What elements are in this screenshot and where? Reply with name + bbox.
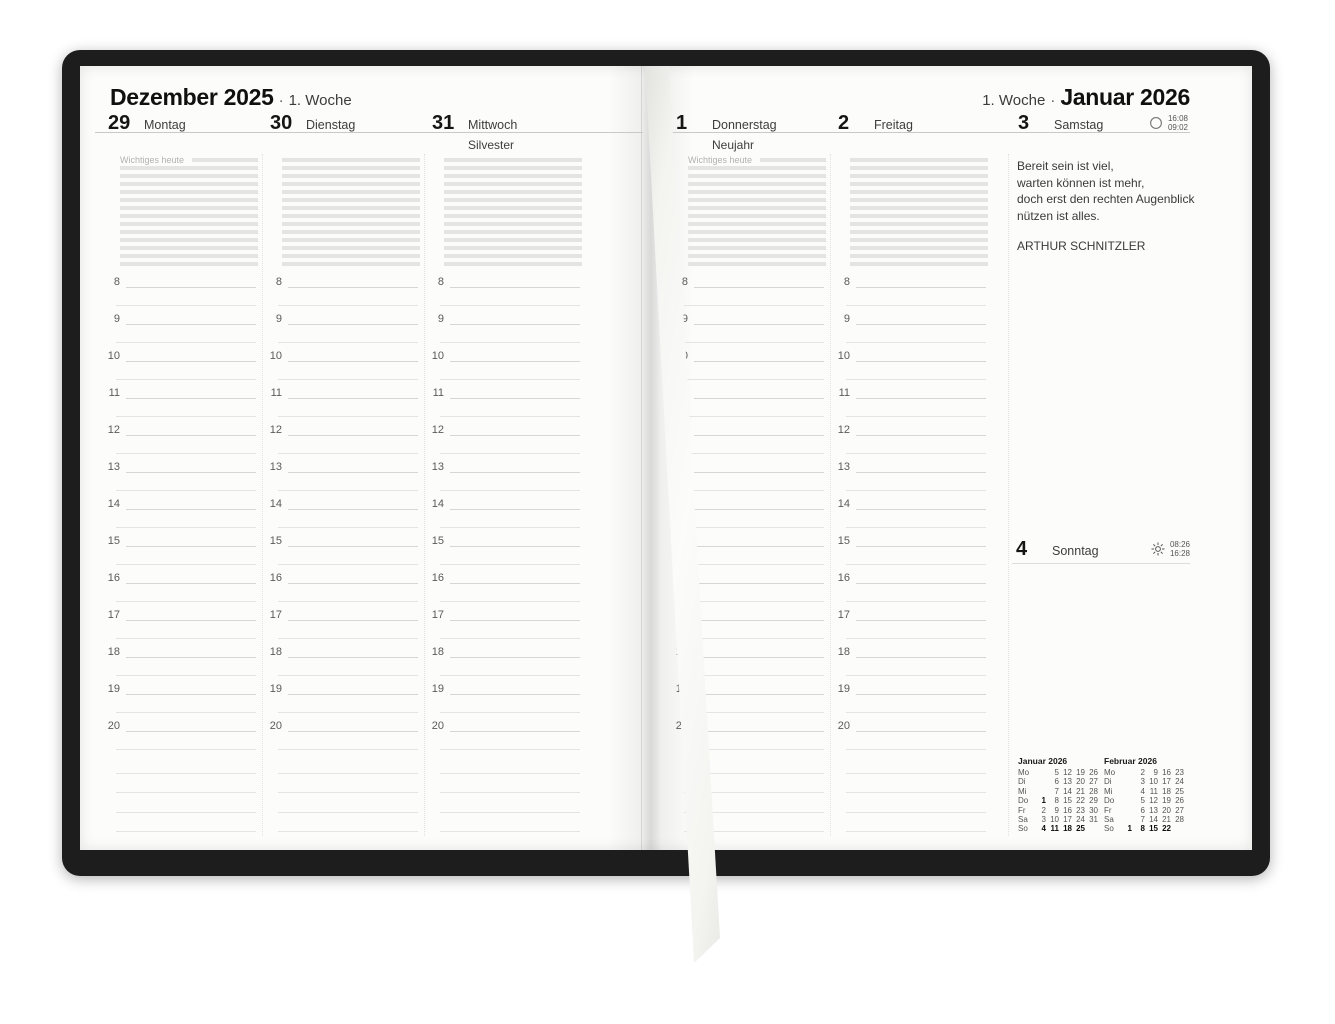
right-page-title: 1. Woche·Januar 2026 <box>982 84 1190 111</box>
hour-line <box>126 435 256 436</box>
hour-row: 18 <box>424 643 586 680</box>
half-hour-line <box>684 416 824 417</box>
hour-label: 15 <box>102 535 120 547</box>
hour-row: 13 <box>830 458 992 495</box>
sun-times: 08:26 16:28 <box>1170 540 1190 558</box>
hour-row: 14 <box>424 495 586 532</box>
mini-calendar-row: Mi7142128 <box>1018 787 1102 796</box>
mini-calendar-date: 14 <box>1145 815 1158 824</box>
moonset-time: 09:02 <box>1168 123 1188 132</box>
hour-label: 14 <box>832 498 850 510</box>
mini-calendar-date: 25 <box>1072 824 1085 833</box>
extra-line <box>846 774 986 794</box>
mini-calendar-date: 9 <box>1145 768 1158 777</box>
day-name: Donnerstag <box>712 118 777 132</box>
hour-row: 18 <box>262 643 424 680</box>
hour-label: 20 <box>426 720 444 732</box>
mini-calendar-date: 18 <box>1059 824 1072 833</box>
hour-row: 19 <box>262 680 424 717</box>
hour-row: 9 <box>830 310 992 347</box>
half-hour-line <box>278 305 418 306</box>
hour-row: 10 <box>424 347 586 384</box>
day-name: Montag <box>144 118 186 132</box>
hour-label: 18 <box>426 646 444 658</box>
hour-line <box>694 509 824 510</box>
half-hour-line <box>278 564 418 565</box>
hour-row: 14 <box>262 495 424 532</box>
mini-calendar-date: 15 <box>1059 796 1072 805</box>
left-week-label: 1. Woche <box>289 92 352 109</box>
hour-label: 12 <box>832 424 850 436</box>
hour-row: 18 <box>100 643 262 680</box>
day-name: Samstag <box>1054 118 1103 132</box>
mini-calendar-date: 15 <box>1145 824 1158 833</box>
half-hour-line <box>278 712 418 713</box>
hour-label: 14 <box>264 498 282 510</box>
hour-line <box>288 287 418 288</box>
mini-calendar-date: 19 <box>1072 768 1085 777</box>
mini-calendar-date: 12 <box>1145 796 1158 805</box>
half-hour-line <box>440 416 580 417</box>
mini-calendar-row: So181522 <box>1104 824 1188 833</box>
hour-label: 9 <box>426 313 444 325</box>
half-hour-line <box>440 527 580 528</box>
hour-grid: 891011121314151617181920 <box>100 273 262 832</box>
hour-row: 17 <box>830 606 992 643</box>
mini-calendar-row: Do18152229 <box>1018 796 1102 805</box>
hour-line <box>450 694 580 695</box>
hour-label: 19 <box>102 683 120 695</box>
hour-line <box>856 287 986 288</box>
day-column-freitag: 2Freitag891011121314151617181920 <box>830 112 992 838</box>
hour-line <box>126 620 256 621</box>
hour-label: 8 <box>102 276 120 288</box>
mini-calendar-date <box>1119 777 1132 786</box>
hour-line <box>288 657 418 658</box>
hour-label: 10 <box>102 350 120 362</box>
hour-line <box>856 583 986 584</box>
half-hour-line <box>440 675 580 676</box>
hour-row: 9 <box>262 310 424 347</box>
half-hour-line <box>684 638 824 639</box>
hour-label: 17 <box>102 609 120 621</box>
mini-calendar-date <box>1033 768 1046 777</box>
hour-row: 12 <box>424 421 586 458</box>
day-name: Sonntag <box>1052 544 1099 558</box>
hour-label: 19 <box>264 683 282 695</box>
mini-calendar-date: 10 <box>1046 815 1059 824</box>
mini-calendar-row: Fr29162330 <box>1018 806 1102 815</box>
hour-line <box>450 398 580 399</box>
half-hour-line <box>440 342 580 343</box>
hour-line <box>288 620 418 621</box>
hour-row: 17 <box>424 606 586 643</box>
half-hour-line <box>684 453 824 454</box>
day-number: 2 <box>838 112 862 135</box>
hour-line <box>126 694 256 695</box>
mini-calendar-date: 4 <box>1132 787 1145 796</box>
mini-calendar-date: 4 <box>1033 824 1046 833</box>
hour-line <box>126 583 256 584</box>
hour-row: 12 <box>262 421 424 458</box>
half-hour-line <box>440 305 580 306</box>
extra-line <box>440 813 580 833</box>
mini-calendar-date: 20 <box>1158 806 1171 815</box>
hour-row: 11 <box>424 384 586 421</box>
mini-calendar-day-label: Do <box>1018 796 1033 805</box>
hour-row: 10 <box>668 347 830 384</box>
half-hour-line <box>440 601 580 602</box>
mini-calendar-row: So4111825 <box>1018 824 1102 833</box>
hour-row: 11 <box>668 384 830 421</box>
hour-row: 15 <box>100 532 262 569</box>
hour-line <box>288 509 418 510</box>
hour-line <box>856 657 986 658</box>
notes-area <box>444 158 582 269</box>
mini-calendar-day-label: Di <box>1104 777 1119 786</box>
half-hour-line <box>846 490 986 491</box>
hour-line <box>694 731 824 732</box>
mini-calendar-date: 21 <box>1158 815 1171 824</box>
mini-calendar-date: 7 <box>1132 815 1145 824</box>
hour-line <box>694 472 824 473</box>
half-hour-line <box>846 601 986 602</box>
hour-label: 11 <box>832 387 850 399</box>
half-hour-line <box>116 749 256 750</box>
hour-line <box>288 472 418 473</box>
day-number: 30 <box>270 112 294 135</box>
half-hour-line <box>440 490 580 491</box>
hour-row: 9 <box>424 310 586 347</box>
mini-calendar-date: 1 <box>1033 796 1046 805</box>
hour-label: 10 <box>832 350 850 362</box>
hour-row: 13 <box>100 458 262 495</box>
half-hour-line <box>684 601 824 602</box>
half-hour-line <box>116 305 256 306</box>
hour-line <box>694 361 824 362</box>
hour-row: 15 <box>424 532 586 569</box>
quote-line: doch erst den rechten Augenblick <box>1017 191 1217 208</box>
hour-line <box>856 361 986 362</box>
extra-line <box>440 774 580 794</box>
quote-line: nützen ist alles. <box>1017 208 1217 225</box>
hour-label: 12 <box>102 424 120 436</box>
mini-calendar-date: 26 <box>1085 768 1098 777</box>
hour-row: 10 <box>830 347 992 384</box>
notes-label: Wichtiges heute <box>688 156 760 165</box>
extra-line <box>440 793 580 813</box>
half-hour-line <box>846 379 986 380</box>
day-name: Dienstag <box>306 118 355 132</box>
mini-calendar-date: 5 <box>1132 796 1145 805</box>
half-hour-line <box>846 305 986 306</box>
hour-row: 12 <box>668 421 830 458</box>
half-hour-line <box>278 527 418 528</box>
extra-line <box>116 774 256 794</box>
hour-row: 8 <box>262 273 424 310</box>
moonrise-time: 16:08 <box>1168 114 1188 123</box>
mini-calendar-row: Di6132027 <box>1018 777 1102 786</box>
half-hour-line <box>440 638 580 639</box>
notes-area: Wichtiges heute <box>688 158 826 269</box>
sunset-time: 16:28 <box>1170 549 1190 558</box>
mini-calendar-date: 11 <box>1145 787 1158 796</box>
extra-line <box>440 754 580 774</box>
hour-line <box>288 546 418 547</box>
hour-row: 20 <box>830 717 992 754</box>
hour-row: 16 <box>100 569 262 606</box>
half-hour-line <box>116 379 256 380</box>
mini-calendar-day-label: Do <box>1104 796 1119 805</box>
extra-line <box>278 793 418 813</box>
day-header: 3Samstag16:0809:02 <box>1010 112 1190 134</box>
day-header-sonntag: 4 Sonntag 08:26 16:28 <box>1010 538 1192 560</box>
mini-calendar-date: 23 <box>1072 806 1085 815</box>
hour-row: 20 <box>100 717 262 754</box>
mini-calendar-row: Mo5121926 <box>1018 768 1102 777</box>
mini-calendar-date <box>1171 824 1184 833</box>
day-number: 29 <box>108 112 132 135</box>
mini-calendar-january: Januar 2026Mo5121926Di6132027Mi7142128Do… <box>1018 756 1102 834</box>
hour-line <box>450 324 580 325</box>
hour-label: 11 <box>426 387 444 399</box>
hour-row: 16 <box>424 569 586 606</box>
mini-calendar-day-label: Sa <box>1018 815 1033 824</box>
hour-label: 15 <box>264 535 282 547</box>
day-name: Mittwoch <box>468 118 517 132</box>
quote-line: Bereit sein ist viel, <box>1017 158 1217 175</box>
hour-row: 13 <box>424 458 586 495</box>
day-column-montag: 29MontagWichtiges heute89101112131415161… <box>100 112 262 838</box>
hour-line <box>288 361 418 362</box>
half-hour-line <box>116 564 256 565</box>
mini-calendar-february: Februar 2026Mo291623Di3101724Mi4111825Do… <box>1104 756 1188 834</box>
mini-calendar-date: 10 <box>1145 777 1158 786</box>
mini-calendar-date: 27 <box>1171 806 1184 815</box>
notes-label: Wichtiges heute <box>120 156 192 165</box>
mini-calendar-day-label: Mi <box>1104 787 1119 796</box>
mini-calendar-date: 11 <box>1046 824 1059 833</box>
mini-calendar-date <box>1085 824 1098 833</box>
half-hour-line <box>846 712 986 713</box>
mini-calendar-date: 22 <box>1072 796 1085 805</box>
half-hour-line <box>278 379 418 380</box>
half-hour-line <box>116 342 256 343</box>
hour-line <box>288 435 418 436</box>
half-hour-line <box>278 638 418 639</box>
mini-calendar-date: 14 <box>1059 787 1072 796</box>
hour-line <box>126 731 256 732</box>
hour-label: 13 <box>832 461 850 473</box>
hour-line <box>288 731 418 732</box>
hour-label: 10 <box>264 350 282 362</box>
notes-area <box>850 158 988 269</box>
left-title-separator: · <box>279 92 284 109</box>
half-hour-line <box>684 342 824 343</box>
half-hour-line <box>116 416 256 417</box>
mini-calendar-date: 30 <box>1085 806 1098 815</box>
half-hour-line <box>684 675 824 676</box>
mini-calendar-row: Do5121926 <box>1104 796 1188 805</box>
mini-calendar-row: Mo291623 <box>1104 768 1188 777</box>
notes-area <box>282 158 420 269</box>
mini-calendar-date: 29 <box>1085 796 1098 805</box>
half-hour-line <box>684 379 824 380</box>
hour-line <box>856 324 986 325</box>
mini-calendar-day-label: Mo <box>1104 768 1119 777</box>
hour-label: 19 <box>832 683 850 695</box>
hour-row: 18 <box>830 643 992 680</box>
hour-label: 18 <box>102 646 120 658</box>
mini-calendar-date <box>1119 796 1132 805</box>
hour-row: 8 <box>830 273 992 310</box>
mini-calendar-date: 9 <box>1046 806 1059 815</box>
extra-line <box>116 754 256 774</box>
hour-row: 17 <box>262 606 424 643</box>
hour-line <box>450 472 580 473</box>
hour-line <box>856 731 986 732</box>
mini-calendar-date: 8 <box>1046 796 1059 805</box>
mini-calendar-date <box>1119 787 1132 796</box>
sunday-header: 4 Sonntag 08:26 16:28 <box>1010 538 1192 564</box>
right-title-separator: · <box>1050 92 1055 109</box>
hour-line <box>694 287 824 288</box>
hour-line <box>126 398 256 399</box>
hour-line <box>450 509 580 510</box>
extra-line <box>846 754 986 774</box>
mini-calendar-date: 2 <box>1033 806 1046 815</box>
extra-line <box>116 793 256 813</box>
mini-calendar-date: 17 <box>1158 777 1171 786</box>
half-hour-line <box>116 638 256 639</box>
right-week-label: 1. Woche <box>982 92 1045 109</box>
day-name: Freitag <box>874 118 913 132</box>
mini-calendar-date: 13 <box>1059 777 1072 786</box>
hour-label: 8 <box>832 276 850 288</box>
hour-line <box>450 361 580 362</box>
hour-line <box>126 509 256 510</box>
hour-line <box>450 287 580 288</box>
hour-row: 19 <box>424 680 586 717</box>
hour-line <box>288 583 418 584</box>
mini-calendar-date: 24 <box>1072 815 1085 824</box>
mini-calendar-date: 18 <box>1158 787 1171 796</box>
hour-row: 12 <box>100 421 262 458</box>
half-hour-line <box>440 564 580 565</box>
mini-calendar-date: 31 <box>1085 815 1098 824</box>
hour-row: 16 <box>830 569 992 606</box>
mini-calendar-date: 28 <box>1085 787 1098 796</box>
hour-line <box>694 657 824 658</box>
mini-calendar-date: 25 <box>1171 787 1184 796</box>
hour-line <box>856 546 986 547</box>
hour-label: 17 <box>832 609 850 621</box>
column-divider <box>1008 154 1009 836</box>
hour-label: 12 <box>426 424 444 436</box>
day-number: 1 <box>676 112 700 135</box>
mini-calendar-date: 27 <box>1085 777 1098 786</box>
half-hour-line <box>846 564 986 565</box>
mini-calendar-date: 3 <box>1132 777 1145 786</box>
half-hour-line <box>440 379 580 380</box>
notes-area: Wichtiges heute <box>120 158 258 269</box>
mini-calendar-date: 28 <box>1171 815 1184 824</box>
mini-calendar-row: Di3101724 <box>1104 777 1188 786</box>
mini-calendar-date: 7 <box>1046 787 1059 796</box>
mini-calendar-date: 6 <box>1046 777 1059 786</box>
hour-line <box>450 657 580 658</box>
half-hour-line <box>278 342 418 343</box>
hour-label: 14 <box>426 498 444 510</box>
hour-grid: 891011121314151617181920 <box>262 273 424 832</box>
planner-photo: Dezember 2025·1. Woche 29MontagWichtiges… <box>0 0 1335 1024</box>
hour-label: 18 <box>264 646 282 658</box>
extra-line <box>846 813 986 833</box>
mini-calendar-date: 13 <box>1145 806 1158 815</box>
day-number: 4 <box>1016 538 1040 561</box>
hour-line <box>694 546 824 547</box>
hour-label: 11 <box>264 387 282 399</box>
half-hour-line <box>278 453 418 454</box>
hour-label: 13 <box>426 461 444 473</box>
hour-row: 9 <box>668 310 830 347</box>
hour-line <box>694 435 824 436</box>
hour-row: 9 <box>100 310 262 347</box>
hour-row: 15 <box>262 532 424 569</box>
hour-label: 17 <box>426 609 444 621</box>
hour-row: 17 <box>100 606 262 643</box>
half-hour-line <box>116 527 256 528</box>
mini-calendar-date: 24 <box>1171 777 1184 786</box>
hour-line <box>126 472 256 473</box>
mini-calendar-date <box>1033 787 1046 796</box>
sunrise-time: 08:26 <box>1170 540 1190 549</box>
mini-calendar-date: 26 <box>1171 796 1184 805</box>
half-hour-line <box>278 601 418 602</box>
mini-calendar-date: 16 <box>1059 806 1072 815</box>
day-column-dienstag: 30Dienstag891011121314151617181920 <box>262 112 424 838</box>
hour-row: 11 <box>262 384 424 421</box>
mini-calendar-date: 20 <box>1072 777 1085 786</box>
mini-calendar-date: 8 <box>1132 824 1145 833</box>
hour-label: 20 <box>264 720 282 732</box>
sunday-header-rule <box>1012 563 1190 564</box>
hour-label: 16 <box>426 572 444 584</box>
hour-row: 16 <box>262 569 424 606</box>
half-hour-line <box>116 453 256 454</box>
half-hour-line <box>440 453 580 454</box>
hour-line <box>126 657 256 658</box>
day-number: 31 <box>432 112 456 135</box>
mini-calendar-date: 16 <box>1158 768 1171 777</box>
mini-calendar-day-label: Sa <box>1104 815 1119 824</box>
mini-calendar-date: 2 <box>1132 768 1145 777</box>
half-hour-line <box>846 416 986 417</box>
mini-calendar-date <box>1033 777 1046 786</box>
page-right: 1. Woche·Januar 2026 1DonnerstagNeujahrW… <box>645 66 1252 850</box>
hour-line <box>694 620 824 621</box>
hour-label: 11 <box>102 387 120 399</box>
hour-label: 18 <box>832 646 850 658</box>
hour-line <box>856 398 986 399</box>
hour-row: 8 <box>668 273 830 310</box>
hour-label: 10 <box>426 350 444 362</box>
mini-calendar-day-label: Di <box>1018 777 1033 786</box>
holiday-label: Silvester <box>468 138 514 152</box>
mini-calendar-date: 1 <box>1119 824 1132 833</box>
mini-calendar-date <box>1119 806 1132 815</box>
hour-label: 13 <box>264 461 282 473</box>
